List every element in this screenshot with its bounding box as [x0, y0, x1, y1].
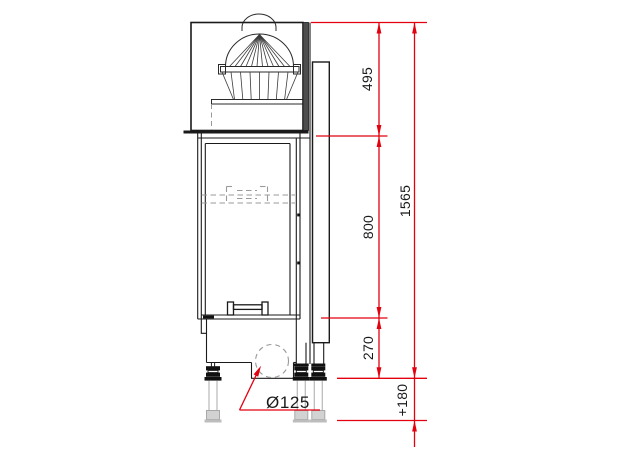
hood-right-strip [303, 23, 309, 131]
leg-plate-middle [294, 364, 309, 367]
door-latch-pin-upper [297, 214, 300, 217]
flue-dome-assembly [212, 14, 308, 131]
dome-cap-base [242, 28, 276, 32]
dim-label-270: 270 [360, 336, 376, 360]
door-handle [228, 302, 269, 315]
hood-box [184, 23, 311, 365]
base-left-bracket [201, 319, 206, 333]
leg-plate-right [311, 364, 325, 367]
hidden-damper-mechanism [202, 187, 296, 204]
dome-base-ring [212, 100, 308, 105]
air-intake-circle [256, 345, 289, 378]
door-latch-pin-lower [297, 262, 300, 265]
dim-label-495: 495 [359, 67, 375, 91]
spacer-column-outline [313, 62, 330, 343]
drawing-linework [0, 0, 624, 460]
firebox-body [198, 62, 313, 364]
dome-band [221, 67, 300, 73]
dome-cap [242, 14, 276, 27]
dimension-arrowheads [377, 23, 417, 432]
dome-ribs [230, 35, 291, 67]
dim-label-800: 800 [360, 215, 376, 239]
dim-label-1565: 1565 [397, 185, 413, 217]
dim-label-diameter-125: Ø125 [266, 393, 310, 413]
dim-label-plus180: +180 [394, 383, 410, 416]
hood-bottom-flange [184, 131, 309, 134]
dome-cage [222, 72, 298, 100]
technical-drawing-canvas: 495 800 270 1565 +180 Ø125 [0, 0, 624, 460]
door-hinge-block [203, 316, 214, 319]
hood-outline [191, 23, 303, 131]
